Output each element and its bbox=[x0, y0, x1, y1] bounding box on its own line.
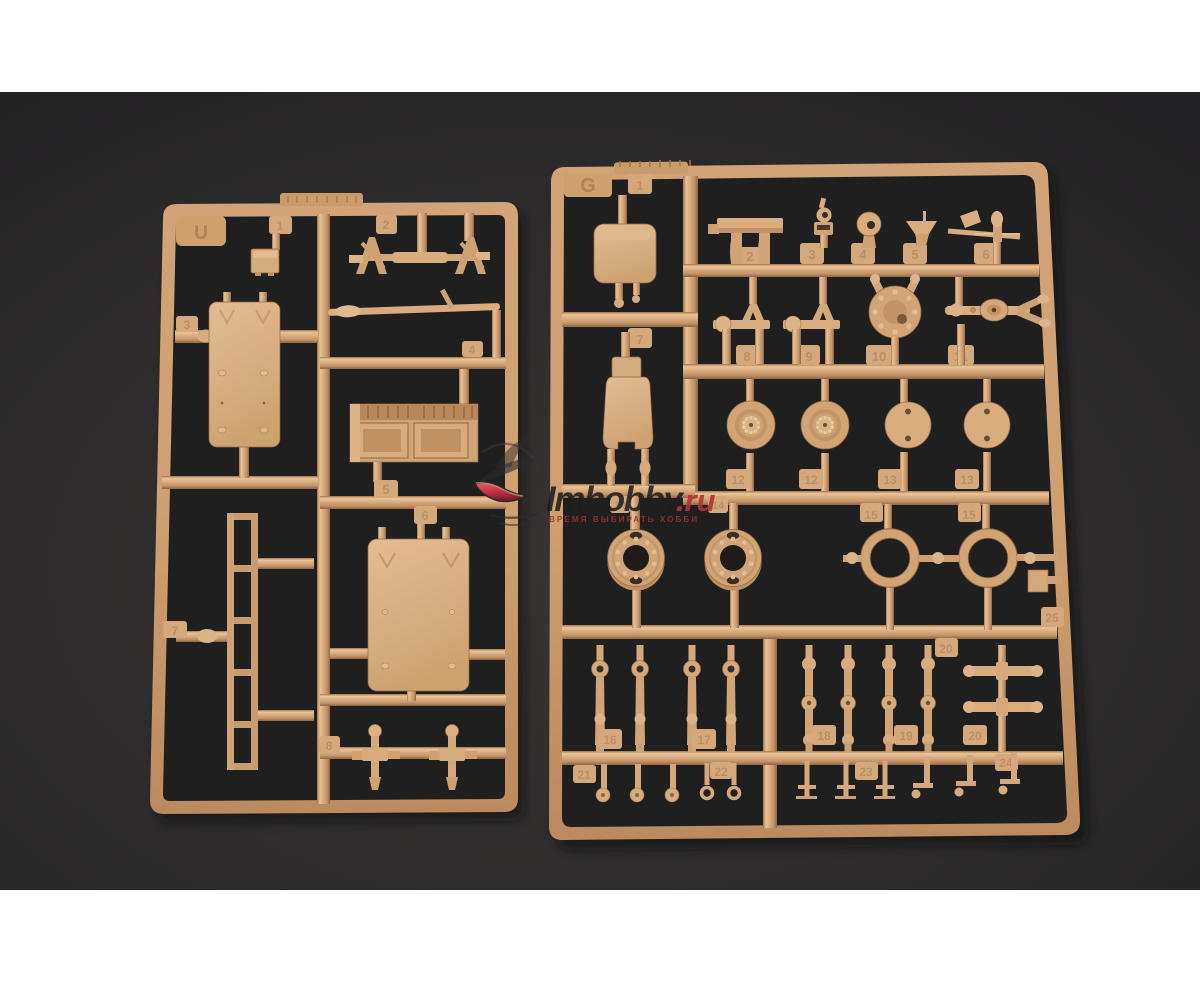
svg-text:24: 24 bbox=[999, 756, 1013, 770]
svg-text:4: 4 bbox=[469, 343, 476, 357]
svg-text:5: 5 bbox=[911, 247, 918, 262]
svg-text:2: 2 bbox=[746, 249, 753, 264]
svg-text:6: 6 bbox=[982, 247, 989, 262]
svg-text:1: 1 bbox=[277, 219, 284, 233]
svg-text:5: 5 bbox=[382, 482, 389, 497]
svg-text:4: 4 bbox=[859, 247, 867, 262]
svg-text:2: 2 bbox=[383, 218, 390, 232]
svg-text:U: U bbox=[194, 223, 208, 244]
svg-text:1: 1 bbox=[636, 178, 643, 193]
svg-text:3: 3 bbox=[184, 318, 191, 332]
svg-text:17: 17 bbox=[697, 733, 711, 747]
svg-text:25: 25 bbox=[1045, 611, 1059, 625]
svg-text:G: G bbox=[580, 175, 596, 197]
svg-text:12: 12 bbox=[731, 473, 745, 487]
svg-text:15: 15 bbox=[962, 508, 976, 522]
svg-text:ВРЕМЯ ВЫБИРАТЬ ХОББИ: ВРЕМЯ ВЫБИРАТЬ ХОББИ bbox=[549, 515, 699, 524]
svg-text:7: 7 bbox=[172, 624, 179, 638]
svg-text:18: 18 bbox=[817, 729, 831, 743]
svg-text:9: 9 bbox=[805, 349, 812, 364]
svg-text:20: 20 bbox=[939, 642, 953, 656]
svg-text:12: 12 bbox=[804, 473, 818, 487]
svg-text:23: 23 bbox=[859, 765, 873, 779]
svg-text:19: 19 bbox=[899, 729, 913, 743]
svg-text:16: 16 bbox=[603, 733, 617, 747]
svg-text:8: 8 bbox=[326, 739, 333, 753]
svg-text:22: 22 bbox=[714, 765, 728, 779]
svg-text:21: 21 bbox=[577, 768, 591, 782]
svg-text:3: 3 bbox=[808, 247, 815, 262]
svg-text:7: 7 bbox=[636, 332, 643, 347]
svg-text:10: 10 bbox=[872, 349, 886, 364]
svg-text:.ru: .ru bbox=[676, 483, 716, 518]
svg-text:13: 13 bbox=[883, 473, 897, 487]
svg-text:8: 8 bbox=[743, 349, 750, 364]
svg-text:13: 13 bbox=[960, 473, 974, 487]
svg-text:Imhobby: Imhobby bbox=[546, 480, 684, 519]
svg-text:15: 15 bbox=[864, 508, 878, 522]
svg-text:6: 6 bbox=[421, 508, 428, 523]
svg-text:20: 20 bbox=[968, 729, 982, 743]
